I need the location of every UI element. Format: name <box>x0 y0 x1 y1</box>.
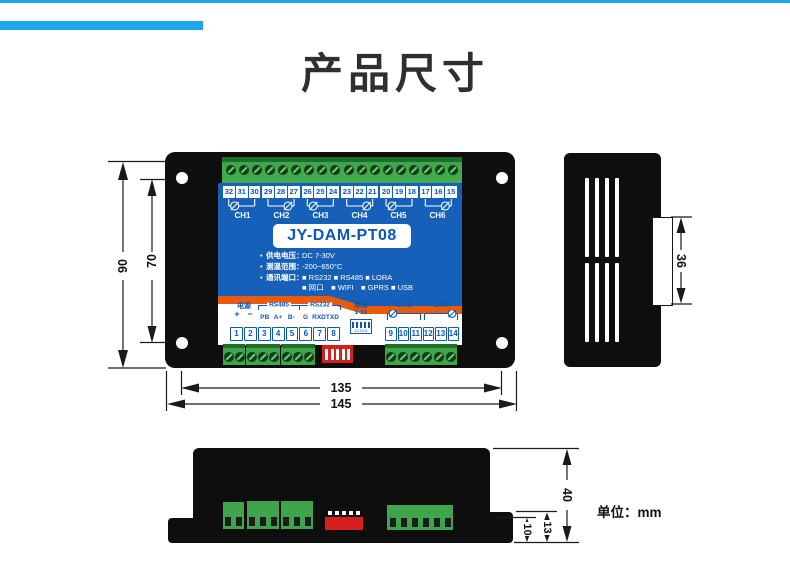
pin-number: 5 <box>286 327 299 341</box>
unit-label: 单位：mm <box>597 501 662 521</box>
dip-digits: 12345 <box>354 329 368 333</box>
power-label: 电源 <box>228 303 260 310</box>
pin-number: 1 <box>230 327 243 341</box>
dimension-overlay: 90 70 135 145 36 40 13 10 <box>0 0 790 586</box>
ch7-label: CH7 <box>423 301 459 309</box>
dim-front-width-outer: 145 <box>331 397 352 411</box>
rs485-label: RS485 <box>267 302 291 309</box>
pin-number: 7 <box>313 327 326 341</box>
dim-bottom-depth: 40 <box>560 488 574 502</box>
rs485-pin-labels: PB A+ B- <box>258 314 298 321</box>
dim-front-width-inner: 135 <box>331 381 352 395</box>
product-dimensions-page: 产品尺寸 32 31 30 29 28 27 <box>0 0 790 586</box>
pin-number: 11 <box>410 327 422 341</box>
dip-switch-icon: 12345 <box>350 319 372 334</box>
ch8-bracket-rtd-icon <box>386 310 422 322</box>
pin-label: G <box>299 314 312 321</box>
pin-number: 4 <box>272 327 285 341</box>
pin-label: A+ <box>271 314 284 321</box>
ch7-bracket-rtd-icon <box>423 310 459 322</box>
pin-number-row-right: 9 10 11 12 13 14 <box>385 327 459 341</box>
address-range-label: 1-31 <box>348 310 374 317</box>
pin-number: 10 <box>398 327 410 341</box>
rs232-label: RS232 <box>308 302 332 309</box>
pin-number: 13 <box>435 327 447 341</box>
pin-number: 3 <box>258 327 271 341</box>
rs232-bracket: RS232 <box>299 305 341 310</box>
pin-label: B- <box>285 314 298 321</box>
pin-number: 14 <box>448 327 460 341</box>
pin-label: RXD <box>312 314 326 321</box>
pin-number-row-left: 1 2 3 4 5 6 7 8 <box>230 327 340 341</box>
pin-number: 6 <box>299 327 312 341</box>
dim-front-height-inner: 70 <box>145 254 159 268</box>
pin-number: 12 <box>423 327 435 341</box>
dim-bottom-step: 13 <box>541 521 553 533</box>
ch8-label: CH8 <box>386 301 422 309</box>
dim-bottom-base: 10 <box>521 523 533 535</box>
pin-label: PB <box>258 314 271 321</box>
power-plus-label: + <box>231 310 243 319</box>
pin-number: 9 <box>385 327 397 341</box>
power-minus-label: − <box>244 310 256 319</box>
rs485-bracket: RS485 <box>258 305 300 310</box>
pin-number: 2 <box>244 327 257 341</box>
pin-number: 8 <box>327 327 340 341</box>
rs232-pin-labels: G RXD TXD <box>299 314 339 321</box>
dim-front-height-outer: 90 <box>116 259 130 273</box>
dim-side-clip-height: 36 <box>674 254 688 268</box>
pin-label: TXD <box>326 314 339 321</box>
address-label: 地址 <box>348 302 374 309</box>
